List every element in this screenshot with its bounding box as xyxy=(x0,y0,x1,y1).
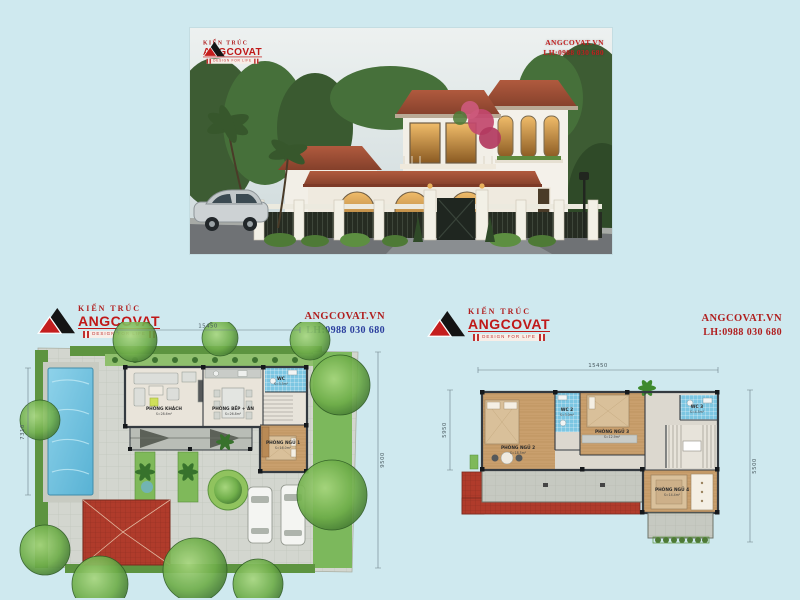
contact-photo: ANGCOVAT.VN LH:0988 030 680 xyxy=(543,38,604,58)
area-wc: S=3.5m² xyxy=(274,382,289,386)
brand-logo-photo: KIẾN TRÚC ANGCOVAT DESIGN FOR LIFE xyxy=(203,40,262,63)
area-bedroom3: S=12.9m² xyxy=(604,435,621,439)
terrace-light-1 xyxy=(543,483,548,487)
terrace xyxy=(482,470,643,502)
floor2-plan-drawing: PHÒNG NGỦ 2 S=18.5m² WC 2 S=3.0m² PHÒNG … xyxy=(425,355,800,585)
balcony-slab xyxy=(400,164,496,169)
planter-left xyxy=(470,455,478,469)
logo-tagline: DESIGN FOR LIFE xyxy=(473,334,545,341)
dim-left-ground: 7310 xyxy=(20,424,26,440)
website-text: ANGCOVAT.VN xyxy=(543,38,604,48)
brand-logo-floor2: KIẾN TRÚC ANGCOVAT DESIGN FOR LIFE xyxy=(427,308,550,341)
area-kitchen: S=26.8m² xyxy=(225,412,242,416)
angcovat-logo-mark xyxy=(203,40,225,57)
balcony xyxy=(648,513,713,543)
second-floor-plan: KIẾN TRÚC ANGCOVAT DESIGN FOR LIFE ANGCO… xyxy=(425,300,800,590)
courtyard-tree xyxy=(214,476,242,504)
balcony-window-1 xyxy=(410,123,440,163)
contact-floor2: ANGCOVAT.VN LH:0988 030 680 xyxy=(701,312,782,340)
dim-width-floor2: 15450 xyxy=(588,363,608,369)
ground-plan-drawing: PHÒNG KHÁCH S=28.6m² PHÒNG BẾP + ĂN S=26… xyxy=(10,322,395,598)
area-bedroom1: S=16.0m² xyxy=(275,446,292,450)
angcovat-logo-mark xyxy=(427,308,465,338)
logo-angcovat: ANGCOVAT xyxy=(468,317,550,332)
dim-right-floor2: 5500 xyxy=(752,458,758,474)
area-living: S=28.6m² xyxy=(156,412,173,416)
page-canvas: KIẾN TRÚC ANGCOVAT DESIGN FOR LIFE ANGCO… xyxy=(0,0,800,600)
logo-kien-truc: KIẾN TRÚC xyxy=(78,305,160,313)
ground-floor-plan: KIẾN TRÚC ANGCOVAT DESIGN FOR LIFE ANGCO… xyxy=(10,300,395,598)
terrace-light-2 xyxy=(600,483,605,487)
logo-tagline: DESIGN FOR LIFE xyxy=(207,59,259,64)
phone-text: LH:0988 030 680 xyxy=(543,48,604,58)
gate-lamp-left xyxy=(427,183,432,188)
area-bedroom4: S=14.4m² xyxy=(664,493,681,497)
red-roof xyxy=(83,500,170,565)
phone-text: LH:0988 030 680 xyxy=(701,326,782,340)
porch-roof xyxy=(303,171,542,186)
dim-width-ground: 15450 xyxy=(198,324,218,330)
area-wc2: S=3.0m² xyxy=(560,413,575,417)
dim-right-ground: 9500 xyxy=(380,452,386,468)
area-wc3: S=4.5m² xyxy=(690,410,705,414)
label-living: PHÒNG KHÁCH xyxy=(146,405,182,412)
villa-render-photo: KIẾN TRÚC ANGCOVAT DESIGN FOR LIFE ANGCO… xyxy=(190,28,612,254)
arched-windows xyxy=(495,116,563,163)
area-bedroom2: S=18.5m² xyxy=(510,451,527,455)
gate-lamp-right xyxy=(479,183,484,188)
logo-kien-truc: KIẾN TRÚC xyxy=(468,308,550,316)
website-text: ANGCOVAT.VN xyxy=(701,312,782,326)
dim-left-floor2: 5950 xyxy=(442,422,448,438)
